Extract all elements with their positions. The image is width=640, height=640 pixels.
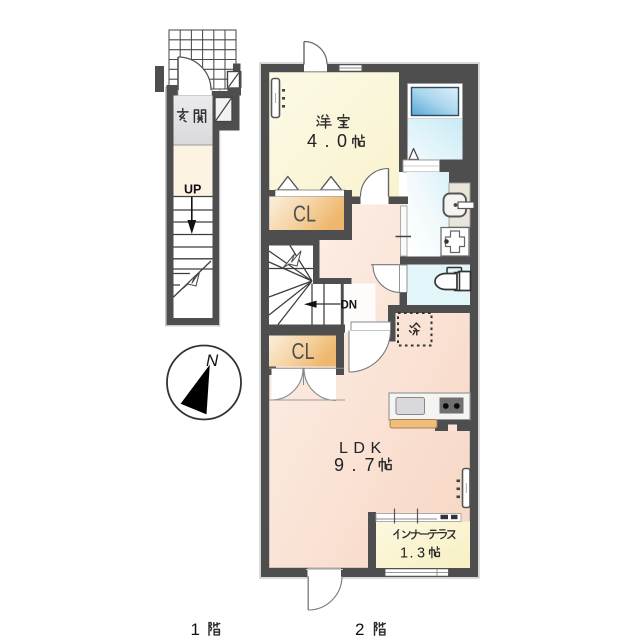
svg-text:N: N	[206, 351, 219, 370]
svg-text:2: 2	[355, 620, 364, 639]
svg-text:LDK: LDK	[339, 440, 387, 457]
svg-text:.: .	[352, 455, 357, 475]
svg-text:9: 9	[334, 455, 344, 475]
svg-text:1: 1	[191, 620, 200, 639]
svg-text:0: 0	[337, 131, 347, 151]
svg-text:CL: CL	[293, 201, 316, 227]
svg-text:.: .	[325, 131, 330, 151]
svg-text:UP: UP	[184, 183, 201, 197]
svg-text:7: 7	[365, 455, 375, 475]
svg-text:3: 3	[417, 546, 425, 562]
svg-text:1: 1	[400, 546, 408, 562]
svg-text:DN: DN	[341, 300, 358, 312]
svg-text:.: .	[410, 546, 414, 562]
svg-text:CL: CL	[292, 338, 315, 364]
svg-text:4: 4	[307, 131, 317, 151]
